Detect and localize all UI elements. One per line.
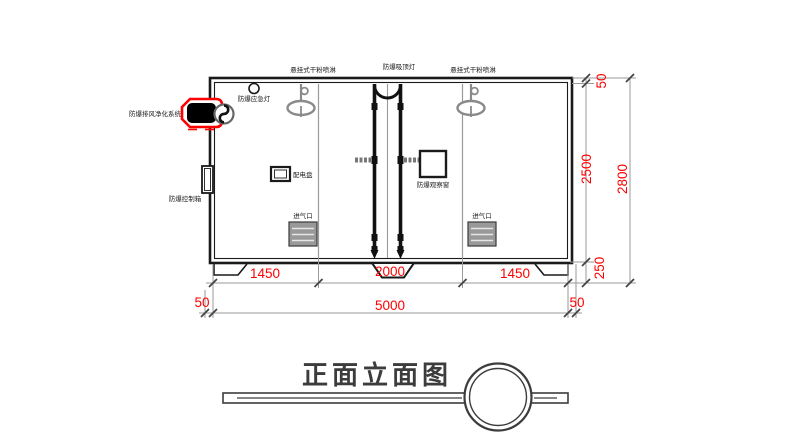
- exhaust-fan-icon: [215, 105, 234, 124]
- label-air-inlet-right: 进气口: [472, 211, 492, 220]
- drawing-title: 正面立面图: [302, 360, 452, 390]
- label-emergency-lamp: 防爆应急灯: [238, 94, 271, 103]
- label-distribution-board: 配电盘: [293, 170, 313, 179]
- label-ceiling-lamp: 防爆吸顶灯: [383, 62, 416, 71]
- dim-bottom-seg2: 2000: [375, 264, 405, 279]
- air-inlet-grille-right: [468, 222, 496, 246]
- container-outline: [210, 78, 572, 263]
- label-sprinkler-right: 悬挂式干粉喷淋: [450, 65, 496, 74]
- dim-bottom-5000: 5000: [375, 298, 405, 313]
- dim-bottom-right-50: 50: [569, 295, 584, 310]
- dim-right-top-50: 50: [594, 73, 609, 88]
- dim-bottom-seg3: 1450: [500, 266, 530, 281]
- emergency-lamp-icon: [249, 84, 259, 94]
- label-air-inlet-left: 进气口: [293, 211, 313, 220]
- distribution-board: [271, 167, 290, 181]
- dim-right-250: 250: [592, 257, 607, 280]
- label-control-box: 防爆控制箱: [169, 194, 202, 203]
- air-inlet-grille-left: [289, 222, 317, 246]
- dim-bottom-left-50: 50: [194, 295, 209, 310]
- dim-right-2800: 2800: [615, 164, 630, 194]
- dim-right-2500: 2500: [579, 154, 594, 184]
- elevation-drawing-canvas: 1450 2000 1450 50 5000 50 50 2500 2800 2…: [0, 0, 800, 445]
- label-exhaust-purifier: 防爆排风净化系统: [129, 109, 182, 118]
- observation-window: [420, 151, 446, 177]
- control-box: [202, 166, 213, 193]
- dim-bottom-seg1: 1450: [250, 266, 280, 281]
- front-elevation-svg: 1450 2000 1450 50 5000 50 50 2500 2800 2…: [0, 0, 800, 445]
- label-sprinkler-left: 悬挂式干粉喷淋: [290, 65, 336, 74]
- label-observation-window: 防爆观察窗: [417, 180, 450, 189]
